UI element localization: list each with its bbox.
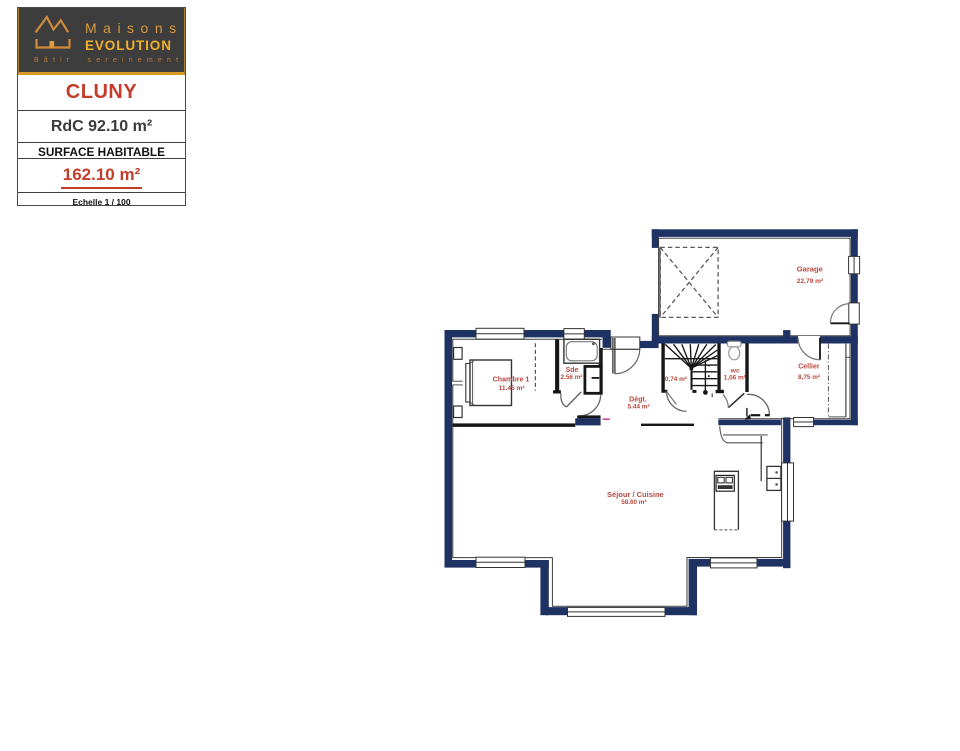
- svg-text:Garage: Garage: [797, 265, 823, 274]
- svg-text:11.45 m²: 11.45 m²: [499, 385, 526, 392]
- svg-text:Cellier: Cellier: [798, 364, 820, 371]
- svg-text:0,74 m²: 0,74 m²: [665, 376, 687, 383]
- svg-text:2.56 m²: 2.56 m²: [560, 374, 582, 381]
- svg-text:58.60 m²: 58.60 m²: [621, 499, 646, 506]
- svg-text:1,06 m²: 1,06 m²: [724, 374, 746, 381]
- svg-text:22,79 m²: 22,79 m²: [797, 278, 824, 285]
- svg-text:Séjour / Cuisine: Séjour / Cuisine: [607, 490, 664, 499]
- svg-text:8,75 m²: 8,75 m²: [798, 374, 820, 381]
- svg-text:5.44 m²: 5.44 m²: [628, 403, 650, 410]
- svg-text:Chambre 1: Chambre 1: [493, 375, 530, 383]
